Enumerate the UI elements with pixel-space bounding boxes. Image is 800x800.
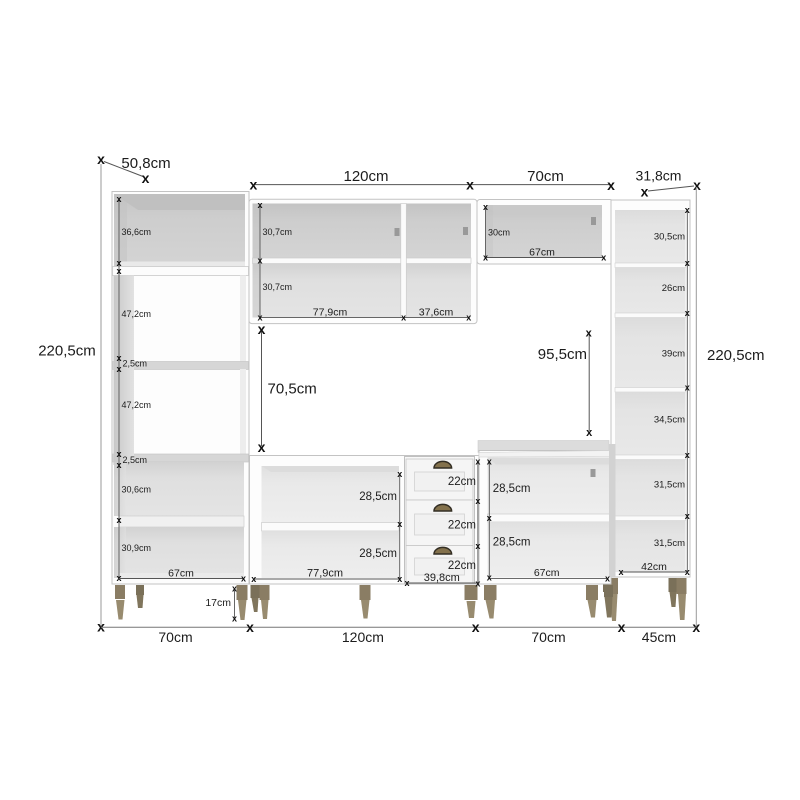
svg-text:x: x [258, 321, 266, 337]
svg-text:x: x [586, 328, 593, 340]
svg-text:x: x [607, 177, 615, 193]
svg-text:70cm: 70cm [158, 629, 192, 645]
svg-text:x: x [116, 364, 121, 374]
svg-text:30,5cm: 30,5cm [654, 232, 685, 243]
svg-text:120cm: 120cm [343, 168, 388, 185]
svg-text:x: x [241, 574, 246, 584]
svg-text:x: x [116, 573, 121, 583]
svg-text:30,7cm: 30,7cm [263, 282, 293, 292]
svg-text:39,8cm: 39,8cm [424, 572, 460, 584]
svg-text:45cm: 45cm [642, 629, 676, 645]
svg-text:77,9cm: 77,9cm [313, 307, 348, 319]
svg-text:x: x [257, 256, 262, 266]
svg-text:x: x [257, 200, 262, 210]
svg-text:x: x [401, 313, 406, 323]
svg-text:28,5cm: 28,5cm [493, 483, 531, 495]
svg-text:x: x [685, 205, 690, 215]
svg-text:x: x [257, 313, 262, 323]
svg-text:x: x [97, 619, 105, 635]
svg-text:220,5cm: 220,5cm [707, 347, 765, 364]
svg-text:26cm: 26cm [662, 283, 685, 294]
svg-text:x: x [116, 460, 121, 470]
svg-text:x: x [693, 177, 701, 193]
svg-text:28,5cm: 28,5cm [493, 537, 531, 549]
svg-text:x: x [475, 541, 480, 551]
svg-text:39cm: 39cm [662, 349, 685, 360]
svg-text:x: x [250, 177, 258, 193]
svg-text:2,5cm: 2,5cm [123, 359, 148, 369]
svg-text:67cm: 67cm [529, 247, 555, 259]
svg-text:x: x [685, 383, 690, 393]
svg-text:x: x [116, 353, 121, 363]
svg-text:30,7cm: 30,7cm [263, 227, 293, 237]
svg-text:x: x [685, 258, 690, 268]
svg-text:120cm: 120cm [342, 629, 384, 645]
svg-text:47,2cm: 47,2cm [122, 309, 152, 319]
svg-text:x: x [116, 449, 121, 459]
svg-text:x: x [116, 266, 121, 276]
svg-text:31,8cm: 31,8cm [636, 168, 682, 184]
svg-text:x: x [601, 253, 606, 263]
svg-text:x: x [404, 578, 409, 588]
svg-text:x: x [397, 469, 402, 479]
svg-text:x: x [475, 456, 480, 466]
svg-text:31,5cm: 31,5cm [654, 480, 685, 491]
svg-text:220,5cm: 220,5cm [38, 343, 96, 360]
svg-text:70cm: 70cm [531, 629, 565, 645]
svg-text:37,6cm: 37,6cm [419, 307, 454, 319]
svg-text:77,9cm: 77,9cm [307, 568, 343, 580]
svg-text:x: x [618, 567, 623, 577]
svg-text:17cm: 17cm [205, 597, 231, 609]
svg-text:x: x [116, 515, 121, 525]
svg-text:x: x [586, 427, 593, 439]
svg-text:x: x [685, 511, 690, 521]
svg-text:x: x [251, 574, 256, 584]
svg-text:x: x [483, 202, 488, 212]
svg-text:x: x [685, 450, 690, 460]
svg-text:34,5cm: 34,5cm [654, 415, 685, 426]
svg-text:x: x [466, 177, 474, 193]
svg-text:x: x [641, 184, 649, 200]
svg-text:28,5cm: 28,5cm [359, 491, 397, 503]
svg-text:22cm: 22cm [448, 520, 476, 532]
svg-text:x: x [397, 574, 402, 584]
svg-text:31,5cm: 31,5cm [654, 538, 685, 549]
svg-text:70cm: 70cm [527, 168, 564, 185]
svg-text:x: x [258, 439, 266, 455]
svg-text:67cm: 67cm [534, 567, 560, 579]
svg-text:x: x [116, 194, 121, 204]
svg-text:x: x [487, 513, 492, 523]
svg-text:70,5cm: 70,5cm [268, 381, 317, 398]
svg-text:28,5cm: 28,5cm [359, 548, 397, 560]
svg-text:22cm: 22cm [448, 560, 476, 572]
svg-text:x: x [487, 457, 492, 467]
svg-text:2,5cm: 2,5cm [123, 455, 148, 465]
svg-text:95,5cm: 95,5cm [538, 346, 587, 363]
svg-text:x: x [483, 253, 488, 263]
svg-text:x: x [232, 614, 237, 624]
svg-text:36,6cm: 36,6cm [122, 227, 152, 237]
svg-text:x: x [487, 573, 492, 583]
svg-text:67cm: 67cm [168, 568, 194, 580]
svg-text:30cm: 30cm [488, 228, 510, 238]
svg-text:x: x [466, 313, 471, 323]
svg-text:x: x [685, 308, 690, 318]
svg-text:x: x [232, 584, 237, 594]
svg-text:x: x [246, 619, 254, 635]
svg-text:x: x [618, 619, 626, 635]
svg-text:x: x [605, 574, 610, 584]
svg-text:42cm: 42cm [641, 561, 667, 573]
svg-text:50,8cm: 50,8cm [121, 155, 170, 172]
svg-text:47,2cm: 47,2cm [122, 400, 152, 410]
svg-text:x: x [397, 519, 402, 529]
svg-text:x: x [475, 496, 480, 506]
svg-text:x: x [475, 579, 480, 589]
svg-text:x: x [142, 170, 150, 186]
svg-text:22cm: 22cm [448, 476, 476, 488]
svg-text:x: x [472, 619, 480, 635]
svg-text:30,6cm: 30,6cm [122, 485, 152, 495]
svg-text:30,9cm: 30,9cm [122, 543, 152, 553]
